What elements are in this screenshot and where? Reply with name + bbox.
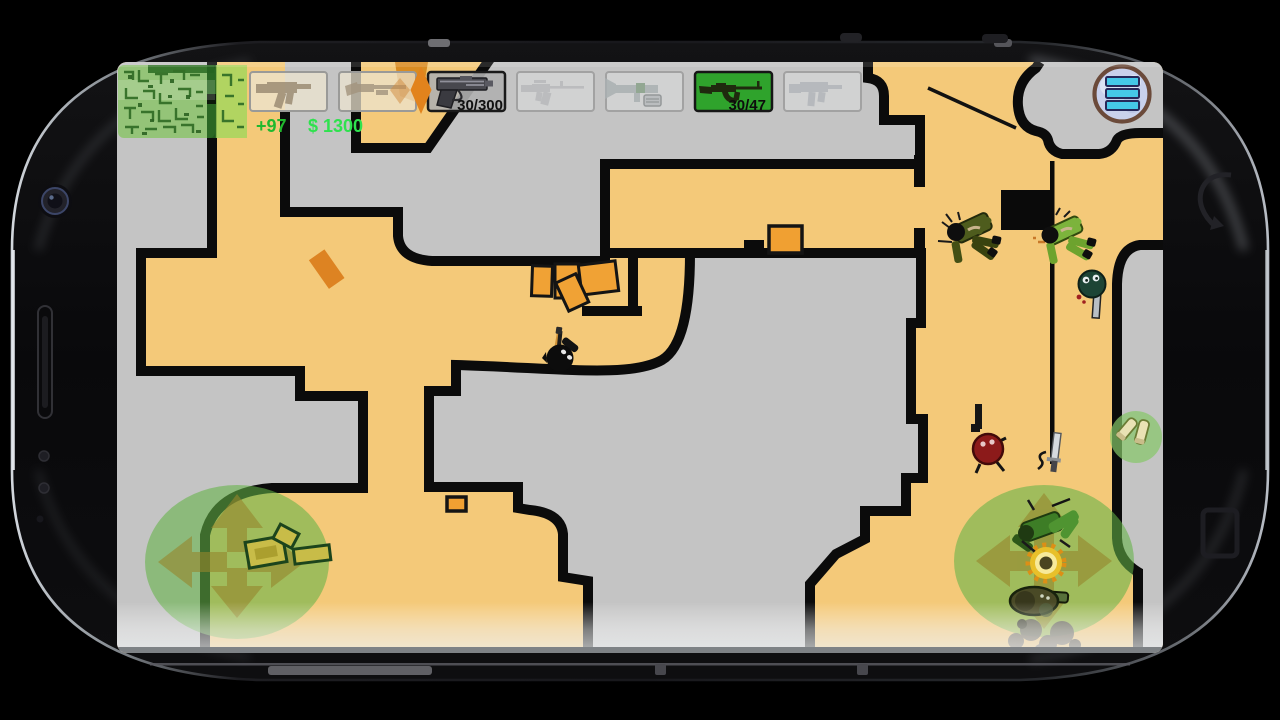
svg-text:+97: +97: [256, 116, 287, 136]
svg-text:30/300: 30/300: [457, 97, 503, 114]
svg-text:$ 1300: $ 1300: [308, 116, 363, 136]
svg-text:30/47: 30/47: [728, 97, 766, 114]
